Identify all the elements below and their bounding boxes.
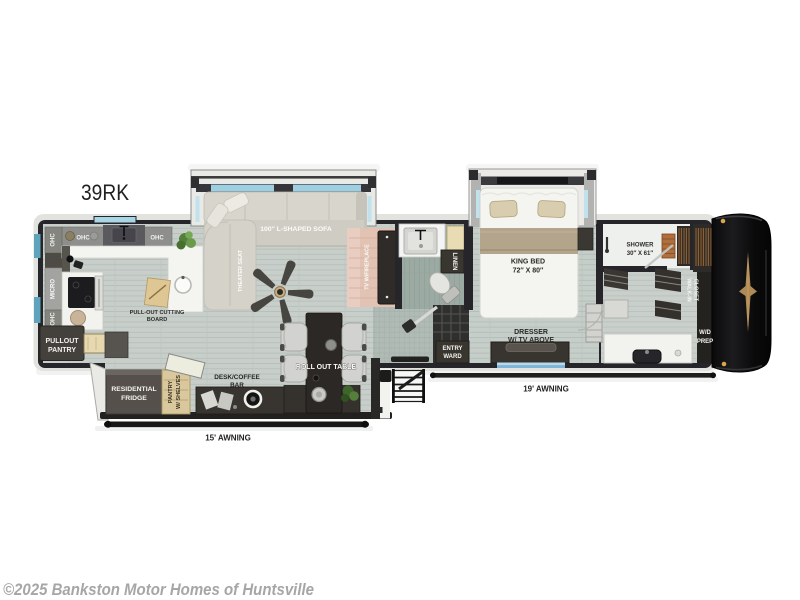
- svg-text:BOARD: BOARD: [147, 317, 168, 323]
- svg-text:PULL-OUT CUTTING: PULL-OUT CUTTING: [130, 310, 185, 316]
- svg-text:WARD: WARD: [443, 354, 462, 360]
- svg-text:72″ X 80″: 72″ X 80″: [513, 268, 544, 275]
- svg-text:OHC: OHC: [76, 236, 90, 242]
- svg-text:W/ SHELVES: W/ SHELVES: [176, 375, 182, 409]
- svg-text:WALK-IN: WALK-IN: [686, 278, 692, 302]
- svg-text:15' AWNING: 15' AWNING: [205, 434, 251, 443]
- svg-text:THEATER SEAT: THEATER SEAT: [238, 249, 244, 292]
- svg-text:19' AWNING: 19' AWNING: [523, 385, 569, 394]
- svg-text:30″ X 61″: 30″ X 61″: [627, 251, 654, 257]
- svg-text:RESIDENTIAL: RESIDENTIAL: [111, 386, 156, 393]
- svg-text:PANTRY: PANTRY: [168, 381, 174, 404]
- svg-text:W/D: W/D: [699, 330, 711, 336]
- svg-text:W/ TV ABOVE: W/ TV ABOVE: [508, 337, 554, 344]
- svg-text:100″ L-SHAPED SOFA: 100″ L-SHAPED SOFA: [260, 226, 332, 233]
- svg-text:OHC: OHC: [51, 312, 57, 326]
- svg-text:OHC: OHC: [150, 236, 164, 242]
- svg-text:LINEN: LINEN: [451, 253, 457, 271]
- svg-text:OHC: OHC: [51, 233, 57, 247]
- svg-text:PREP: PREP: [697, 339, 713, 345]
- svg-text:SHOWER: SHOWER: [627, 243, 655, 249]
- svg-text:FRIDGE: FRIDGE: [121, 395, 147, 402]
- svg-text:PULLOUT: PULLOUT: [45, 338, 79, 345]
- svg-text:ROLL OUT TABLE: ROLL OUT TABLE: [296, 364, 357, 371]
- svg-text:DESK/COFFEE: DESK/COFFEE: [214, 374, 260, 381]
- svg-text:MICRO: MICRO: [51, 279, 57, 299]
- svg-text:TV W/FIREPLACE: TV W/FIREPLACE: [365, 244, 371, 290]
- svg-text:©2025 Bankston Motor Homes of: ©2025 Bankston Motor Homes of Huntsville: [3, 581, 314, 599]
- svg-text:ENTRY: ENTRY: [442, 346, 462, 352]
- svg-text:BAR: BAR: [230, 382, 244, 389]
- svg-text:39RK: 39RK: [81, 180, 129, 205]
- svg-text:KING BED: KING BED: [511, 259, 545, 266]
- svg-text:PANTRY: PANTRY: [48, 347, 76, 354]
- svg-text:CLOSET: CLOSET: [693, 279, 699, 302]
- svg-text:DRESSER: DRESSER: [514, 329, 548, 336]
